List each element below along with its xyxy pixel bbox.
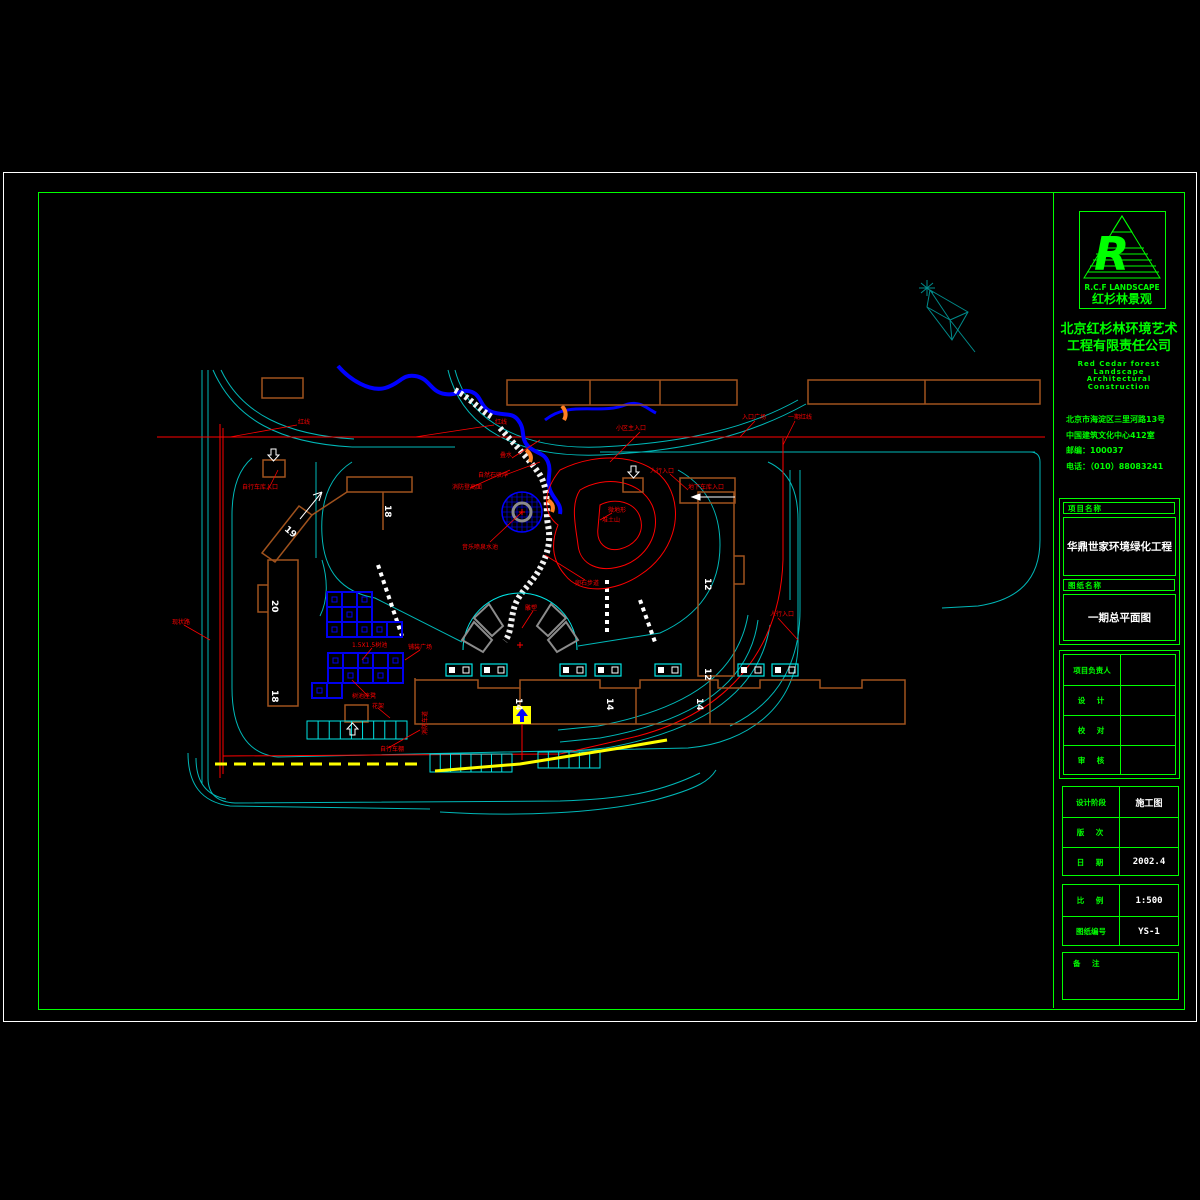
label-cascade: 叠水 [500, 451, 512, 459]
address-line-1: 北京市海淀区三里河路13号 [1066, 412, 1165, 428]
personnel-row: 审 核 [1064, 745, 1175, 774]
bldg-12-2: 12 [702, 668, 712, 681]
label-ped-entry-2: 人行入口 [770, 610, 794, 618]
label-ped-entry: 人行入口 [650, 467, 674, 475]
label-pergola: 花架 [372, 702, 384, 710]
project-name-label: 项目名称 [1063, 502, 1175, 514]
address-line-4: 电话：（010）88083241 [1066, 459, 1165, 475]
address-line-3: 邮编：100037 [1066, 443, 1165, 459]
row-label: 设 计 [1064, 686, 1121, 715]
personnel-row: 设 计 [1064, 685, 1175, 715]
notes-label: 备 注 [1073, 958, 1102, 969]
personnel-table: 项目负责人 设 计 校 对 审 核 [1059, 650, 1180, 779]
row-label: 校 对 [1064, 716, 1121, 745]
project-name-value: 华鼎世家环境绿化工程 [1063, 517, 1176, 576]
cad-sheet: 红线 红线 一期红线 小区主入口 入口广场 地下车库入口 人行入口 人行入口 自… [0, 0, 1200, 1200]
label-tree-pool: 1.5X1.5树池 [352, 641, 387, 649]
row-label: 设计阶段 [1063, 787, 1120, 817]
red-boundary-lines [157, 424, 1045, 778]
buildings [258, 378, 1040, 724]
bldg-18-top: 18 [382, 505, 392, 518]
row-value [1121, 686, 1175, 715]
bldg-14-3: 14 [694, 698, 704, 711]
label-fire-lane: 消防登高面 [452, 483, 482, 491]
company-name-cn-2: 工程有限责任公司 [1054, 335, 1184, 354]
company-name-en-1: Red Cedar forest Landscape [1054, 360, 1184, 376]
row-value [1121, 655, 1175, 685]
project-section: 项目名称 华鼎世家环境绿化工程 图纸名称 一期总平面图 [1059, 498, 1180, 645]
scale-row: 图纸编号 YS-1 [1063, 916, 1178, 946]
address-line-2: 中国建筑文化中心412室 [1066, 428, 1165, 444]
row-label: 审 核 [1064, 746, 1121, 774]
svg-text:R: R [1094, 227, 1129, 281]
label-pebble-path: 卵石步道 [575, 579, 599, 587]
label-bike-shed: 自行车棚 [380, 745, 404, 753]
label-stone-bank: 自然石驳岸 [478, 471, 508, 479]
label-redline-3: 一期红线 [788, 413, 812, 421]
company-logo: R R.C.F LANDSCAPE 红杉林景观 [1080, 212, 1165, 308]
bldg-19: 19 [282, 525, 298, 541]
balcony-details [446, 664, 798, 676]
scale-table: 比 例 1:500 图纸编号 YS-1 [1062, 884, 1179, 946]
notes-box: 备 注 [1062, 952, 1179, 1000]
label-mound-1: 微地形 [608, 506, 626, 514]
row-value [1121, 746, 1175, 774]
label-mound-2: 堆土山 [602, 516, 620, 524]
row-value [1121, 716, 1175, 745]
bldg-14-2: 14 [604, 698, 614, 711]
label-bike-garage: 自行车库入口 [242, 483, 278, 491]
stage-table: 设计阶段 施工图 版 次 日 期 2002.4 [1062, 786, 1179, 876]
label-redline-1: 红线 [298, 418, 310, 426]
row-value: 1:500 [1120, 885, 1178, 916]
row-value: 2002.4 [1120, 848, 1178, 876]
label-redline-2: 红线 [495, 418, 507, 426]
bldg-14-1: 14 [513, 698, 523, 711]
row-value: YS-1 [1120, 917, 1178, 946]
label-main-entry: 小区主入口 [616, 424, 646, 432]
label-sculpture: 雕塑 [525, 604, 537, 612]
stage-row: 版 次 [1063, 817, 1178, 847]
title-block: R R.C.F LANDSCAPE 红杉林景观 北京红杉林环境艺术 工程有限责任… [1053, 192, 1184, 1008]
scale-row: 比 例 1:500 [1063, 885, 1178, 916]
row-label: 图纸编号 [1063, 917, 1120, 946]
label-fire-road: 消防车道 [421, 711, 429, 735]
stage-row: 设计阶段 施工图 [1063, 787, 1178, 817]
row-label: 比 例 [1063, 885, 1120, 916]
row-value: 施工图 [1120, 787, 1178, 817]
label-garage-entry: 地下车库入口 [688, 483, 724, 491]
label-entry-plaza: 入口广场 [742, 413, 766, 421]
label-exist-road: 现状路 [172, 618, 190, 626]
label-plaza-paving: 铺装广场 [408, 643, 432, 651]
logo-box: R R.C.F LANDSCAPE 红杉林景观 [1079, 211, 1166, 309]
label-fountain: 音乐喷泉水池 [462, 543, 498, 551]
row-label: 项目负责人 [1064, 655, 1121, 685]
north-arrow-icon [919, 280, 975, 352]
row-label: 版 次 [1063, 818, 1120, 847]
row-label: 日 期 [1063, 848, 1120, 876]
stage-row: 日 期 2002.4 [1063, 847, 1178, 876]
logo-brand-en: R.C.F LANDSCAPE [1084, 283, 1159, 292]
bldg-12-1: 12 [702, 578, 712, 591]
company-address: 北京市海淀区三里河路13号 中国建筑文化中心412室 邮编：100037 电话：… [1066, 412, 1165, 474]
drawing-name-label: 图纸名称 [1063, 579, 1175, 591]
personnel-row: 校 对 [1064, 715, 1175, 745]
logo-brand-cn: 红杉林景观 [1092, 291, 1152, 306]
drawing-name-value: 一期总平面图 [1063, 594, 1176, 641]
personnel-row: 项目负责人 [1064, 655, 1175, 685]
row-value [1120, 818, 1178, 847]
amphitheater-plaza [462, 593, 578, 652]
site-plan-drawing: 红线 红线 一期红线 小区主入口 入口广场 地下车库入口 人行入口 人行入口 自… [0, 0, 1200, 1200]
bldg-20: 20 [269, 600, 279, 613]
label-tree-bench: 树池座凳 [352, 692, 376, 700]
bldg-18-left: 18 [269, 690, 279, 703]
company-name-en-2: Architectural Construction [1054, 375, 1184, 391]
